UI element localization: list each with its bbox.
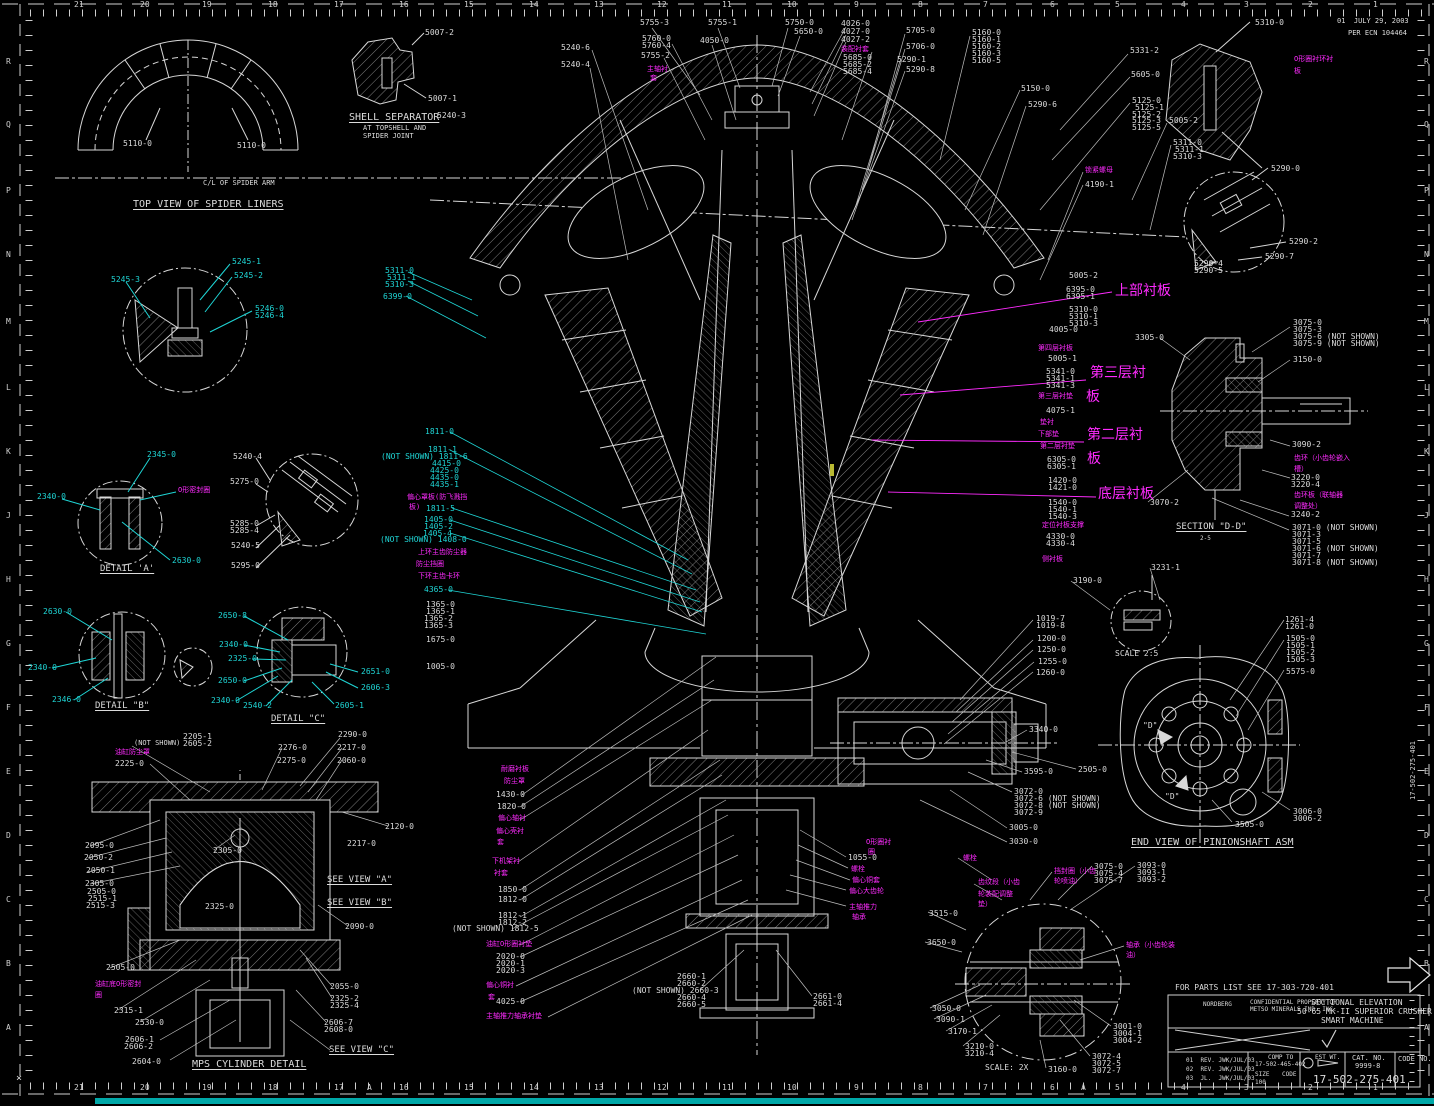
- part-callout: 4365-0: [424, 586, 453, 594]
- part-callout: 5007-1: [428, 95, 457, 103]
- grid-label-bottom: 18: [268, 1083, 278, 1092]
- part-callout: 5110-0: [237, 142, 266, 150]
- grid-label-left: F: [6, 703, 11, 712]
- part-callout: (NOT SHOWN): [134, 740, 180, 747]
- part-callout: "D": [1143, 722, 1157, 730]
- annotation-label: 齿环（小齿轮嵌入: [1294, 455, 1350, 462]
- bolt-bank-detail: [256, 454, 358, 568]
- part-callout: DETAIL "C": [271, 715, 325, 725]
- grid-label-top: 2: [1308, 0, 1313, 9]
- annotation-label: O形密封圈: [178, 487, 210, 494]
- part-callout: 2651-0: [361, 668, 390, 676]
- part-callout: 3090-1: [936, 1016, 965, 1024]
- part-callout: 3093-2: [1137, 876, 1166, 884]
- part-callout: 1850-0: [498, 886, 527, 894]
- part-callout: 3072-7: [1092, 1067, 1121, 1075]
- grid-label-right: L: [1424, 383, 1429, 392]
- annotation-label: 油缸防尘罩: [115, 749, 150, 756]
- blueprint-canvas: 5007-25007-1SHELL SEPARATORAT TOPSHELL A…: [0, 0, 1434, 1106]
- part-callout: 6395-1: [1066, 293, 1095, 301]
- part-callout: (NOT SHOWN) 1408-0: [380, 536, 467, 544]
- annotation-label: 垫衬: [1040, 419, 1054, 426]
- grid-label-top: 20: [140, 0, 150, 9]
- part-callout: 5290-2: [1289, 238, 1318, 246]
- annotation-label: 耐磨衬板: [501, 766, 529, 773]
- confidential-line2: METSO MINERALS IND. INC.: [1250, 1007, 1337, 1013]
- part-callout: 5007-2: [425, 29, 454, 37]
- scale-value: 100: [1255, 1080, 1266, 1086]
- grid-label-top: 3: [1244, 0, 1249, 9]
- grid-label-top: 19: [202, 0, 212, 9]
- annotation-label: 套: [497, 839, 504, 846]
- part-callout: SEE VIEW "B": [327, 899, 392, 909]
- part-callout: 3150-0: [1293, 356, 1322, 364]
- part-callout: 1675-0: [426, 636, 455, 644]
- part-callout: 2120-0: [385, 823, 414, 831]
- shell-separator-detail: [352, 33, 426, 104]
- grid-label-bottom: 21: [74, 1083, 84, 1092]
- part-callout: 2050-2: [84, 854, 113, 862]
- grid-label-bottom: 11: [722, 1083, 732, 1092]
- revision-date: 01 JULY 29, 2003: [1337, 18, 1409, 25]
- rev-row-1: 01 REV. JWK/JUL/03: [1186, 1058, 1255, 1064]
- grid-label-top: 6: [1050, 0, 1055, 9]
- grid-label-top: 11: [722, 0, 732, 9]
- annotation-label: 主轴衬: [647, 66, 668, 73]
- grid-label-bottom: 9: [854, 1083, 859, 1092]
- part-callout: 3071-8 (NOT SHOWN): [1292, 559, 1379, 567]
- part-callout: 3340-0: [1029, 726, 1058, 734]
- part-callout: 3220-4: [1291, 481, 1320, 489]
- drawing-linework: [0, 0, 1434, 1106]
- part-callout: "D": [1165, 793, 1179, 801]
- annotation-label: 板: [1294, 68, 1301, 75]
- part-callout: 2608-0: [324, 1026, 353, 1034]
- part-callout: 2606-3: [361, 684, 390, 692]
- grid-label-bottom: 6: [1050, 1083, 1055, 1092]
- part-callout: 4435-1: [430, 481, 459, 489]
- annotation-label: 油缸底O形密封: [95, 981, 141, 988]
- part-callout: 6305-1: [1047, 463, 1076, 471]
- grid-label-left: N: [6, 250, 11, 259]
- grid-label-bottom: 15: [464, 1083, 474, 1092]
- end-view-pinionshaft: [1098, 645, 1300, 848]
- grid-label-right: H: [1424, 575, 1429, 584]
- part-callout: 6399-0: [383, 293, 412, 301]
- part-callout: 3505-0: [1235, 821, 1264, 829]
- spider-cap-detail: [123, 264, 252, 392]
- part-callout: 5150-0: [1021, 85, 1050, 93]
- annotation-label: 油）: [1126, 952, 1140, 959]
- part-callout: 5245-2: [234, 272, 263, 280]
- grid-label-left: M: [6, 317, 11, 326]
- part-callout: 5685-4: [843, 68, 872, 76]
- part-callout: 5240-3: [437, 112, 466, 120]
- part-callout: 1055-0: [848, 854, 877, 862]
- part-callout: 3030-0: [1009, 838, 1038, 846]
- part-callout: 2-5: [1200, 536, 1211, 542]
- grid-label-left: K: [6, 447, 11, 456]
- part-callout: SCALE 2:5: [1115, 650, 1158, 658]
- part-callout: DETAIL "B": [95, 702, 149, 712]
- part-callout: 2325-4: [330, 1002, 359, 1010]
- annotation-label: 板: [1087, 452, 1101, 467]
- part-callout: 5760-4: [642, 42, 671, 50]
- annotation-label: 板): [409, 504, 420, 511]
- annotation-label: 第二层衬垫: [1040, 443, 1075, 450]
- part-callout: 1820-0: [497, 803, 526, 811]
- part-callout: 5705-0: [906, 27, 935, 35]
- annotation-label: O形圈衬: [866, 839, 891, 846]
- grid-label-left: L: [6, 383, 11, 392]
- part-callout: 5160-5: [972, 57, 1001, 65]
- annotation-label: 轮装配调整: [978, 891, 1013, 898]
- part-callout: 5310-3: [385, 281, 414, 289]
- part-callout: 5706-0: [906, 43, 935, 51]
- part-callout: SEE VIEW "A": [327, 876, 392, 886]
- annotation-label: 下部垫: [1038, 431, 1059, 438]
- part-callout: 5246-4: [255, 312, 284, 320]
- part-callout: 2340-0: [28, 664, 57, 672]
- part-callout: 3090-2: [1292, 441, 1321, 449]
- revision-ecn: PER ECN 104464: [1348, 30, 1407, 37]
- part-callout: 2340-0: [219, 641, 248, 649]
- grid-label-left: D: [6, 831, 11, 840]
- part-callout: 1430-0: [496, 791, 525, 799]
- part-callout: 2060-0: [337, 757, 366, 765]
- grid-label-right: J: [1424, 511, 1429, 520]
- annotation-label: 下环主齿卡环: [418, 573, 460, 580]
- annotation-label: 上环主齿防尘器: [418, 549, 467, 556]
- part-callout: 3650-0: [927, 939, 956, 947]
- grid-label-right: A: [1424, 1023, 1429, 1032]
- part-callout: 2020-3: [496, 967, 525, 975]
- brand-mark: NORDBERG: [1203, 1002, 1232, 1008]
- part-callout: 3075-9 (NOT SHOWN): [1293, 340, 1380, 348]
- annotation-label: 轴承: [852, 914, 866, 921]
- annotation-label: 偏心铜套: [852, 877, 880, 884]
- annotation-label: 齿环板（联轴器: [1294, 492, 1343, 499]
- part-callout: 3070-2: [1150, 499, 1179, 507]
- annotation-label: 挡封圈（小齿: [1054, 868, 1096, 875]
- part-callout: 5755-2: [641, 52, 670, 60]
- grid-label-top: 10: [787, 0, 797, 9]
- part-callout: 3170-1: [948, 1028, 977, 1036]
- part-callout: SECTION "D-D": [1176, 523, 1246, 533]
- yellow-highlight-mark: [830, 464, 834, 476]
- grid-label-top: 9: [854, 0, 859, 9]
- annotation-label: 偏心轴衬: [498, 815, 526, 822]
- part-callout: 1261-0: [1285, 623, 1314, 631]
- part-callout: 3305-0: [1135, 334, 1164, 342]
- part-callout: 2217-0: [337, 744, 366, 752]
- part-callout: 4027-2: [841, 36, 870, 44]
- part-callout: 5275-0: [230, 478, 259, 486]
- part-callout: (NOT SHOWN) 1812-5: [452, 925, 539, 933]
- part-callout: 5285-4: [230, 527, 259, 535]
- grid-label-bottom: 3: [1244, 1083, 1249, 1092]
- part-callout: DETAIL 'A': [100, 565, 154, 575]
- part-callout: 5110-0: [123, 140, 152, 148]
- part-callout: 2340-0: [211, 697, 240, 705]
- part-callout: 3190-0: [1073, 577, 1102, 585]
- part-callout: 5290-7: [1265, 253, 1294, 261]
- annotation-label: 偏心罩板(防飞溅挡: [407, 494, 467, 501]
- part-callout: 5005-2: [1169, 117, 1198, 125]
- part-callout: 3240-2: [1291, 511, 1320, 519]
- grid-label-left: H: [6, 575, 11, 584]
- part-callout: 1812-0: [498, 896, 527, 904]
- grid-label-bottom: 16: [399, 1083, 409, 1092]
- annotation-label: 下机架衬: [492, 858, 520, 865]
- part-callout: 5240-4: [561, 61, 590, 69]
- part-callout: 5755-3: [640, 19, 669, 27]
- part-callout: 5331-2: [1130, 47, 1159, 55]
- part-callout: 2661-4: [813, 1000, 842, 1008]
- grid-label-bottom: A: [1081, 1083, 1086, 1092]
- grid-label-bottom: 7: [983, 1083, 988, 1092]
- part-callout: END VIEW OF PINIONSHAFT ASM: [1131, 838, 1294, 849]
- grid-label-right: E: [1424, 767, 1429, 776]
- bottom-green-bar: [95, 1098, 1434, 1104]
- part-callout: 2345-0: [147, 451, 176, 459]
- part-callout: 2605-1: [335, 702, 364, 710]
- part-callout: 5290-6: [1028, 101, 1057, 109]
- part-callout: 2090-0: [345, 923, 374, 931]
- part-callout: 5290-8: [906, 66, 935, 74]
- part-callout: MPS CYLINDER DETAIL: [192, 1060, 306, 1071]
- annotation-label: 螺栓: [851, 866, 865, 873]
- part-callout: 4005-0: [1049, 326, 1078, 334]
- annotation-label: 上部衬板: [1115, 284, 1171, 299]
- grid-label-bottom: 10: [787, 1083, 797, 1092]
- part-callout: 3050-0: [932, 1005, 961, 1013]
- grid-label-right: G: [1424, 639, 1429, 648]
- grid-label-bottom: 13: [594, 1083, 604, 1092]
- part-callout: 5341-3: [1046, 382, 1075, 390]
- detail-b-c: [52, 607, 358, 706]
- part-callout: 5575-0: [1286, 668, 1315, 676]
- annotation-label: 防尘挡圈: [416, 561, 444, 568]
- drawing-title-line3: SMART MACHINE: [1321, 1017, 1384, 1025]
- scale-2x-detail: [955, 904, 1132, 1060]
- annotation-label: 第二层衬: [1087, 428, 1143, 443]
- grid-label-right: C: [1424, 895, 1429, 904]
- part-callout: 2290-0: [338, 731, 367, 739]
- part-callout: 4050-0: [700, 37, 729, 45]
- annotation-label: O形圈衬环衬: [1294, 56, 1333, 63]
- part-callout: 3072-9: [1014, 809, 1043, 817]
- grid-label-top: 14: [529, 0, 539, 9]
- part-callout: SHELL SEPARATOR: [349, 113, 439, 124]
- grid-label-right: B: [1424, 959, 1429, 968]
- grid-label-top: 4: [1181, 0, 1186, 9]
- grid-label-top: 15: [464, 0, 474, 9]
- grid-label-right: K: [1424, 447, 1429, 456]
- annotation-label: 齿纹段（小齿: [978, 879, 1020, 886]
- part-callout: 1505-3: [1286, 656, 1315, 664]
- grid-label-bottom: 5: [1115, 1083, 1120, 1092]
- sheet-border: [2, 4, 1434, 1098]
- grid-label-right: Q: [1424, 120, 1429, 129]
- grid-label-top: 1: [1373, 0, 1378, 9]
- grid-label-right: F: [1424, 703, 1429, 712]
- annotation-label: 套: [650, 75, 657, 82]
- part-callout: 2630-0: [43, 608, 72, 616]
- annotation-label: 主轴推力轴承衬垫: [486, 1013, 542, 1020]
- grid-label-right: R: [1424, 57, 1429, 66]
- annotation-label: 锁紧螺母: [1085, 167, 1113, 174]
- part-callout: 5310-3: [1173, 153, 1202, 161]
- part-callout: 4025-0: [496, 998, 525, 1006]
- part-callout: 2604-0: [132, 1058, 161, 1066]
- part-callout: 2505-0: [106, 964, 135, 972]
- part-callout: C/L OF SPIDER ARM: [203, 180, 275, 187]
- part-callout: TOP VIEW OF SPIDER LINERS: [133, 200, 284, 211]
- annotation-label: 螺栓: [963, 855, 977, 862]
- annotation-label: 第三层衬垫: [1038, 393, 1073, 400]
- annotation-label: 套: [488, 994, 495, 1001]
- part-callout: 3075-7: [1094, 877, 1123, 885]
- part-callout: 2325-0: [205, 903, 234, 911]
- part-callout: 1019-8: [1036, 622, 1065, 630]
- part-callout: 2315-1: [114, 1007, 143, 1015]
- part-callout: 3231-1: [1151, 564, 1180, 572]
- part-callout: ×: [16, 1074, 22, 1085]
- part-callout: 2606-2: [124, 1043, 153, 1051]
- grid-label-left: Q: [6, 120, 11, 129]
- grid-label-top: 13: [594, 0, 604, 9]
- part-callout: 2650-8: [218, 612, 247, 620]
- annotation-label: 垫）: [978, 901, 992, 908]
- part-callout: 2276-0: [278, 744, 307, 752]
- part-callout: 3006-2: [1293, 815, 1322, 823]
- annotation-label: 圈: [95, 992, 102, 999]
- part-callout: 5295-0: [231, 562, 260, 570]
- part-callout: 2225-0: [115, 760, 144, 768]
- part-callout: 5005-1: [1048, 355, 1077, 363]
- part-callout: 2340-0: [37, 493, 66, 501]
- part-callout: 5650-0: [794, 28, 823, 36]
- annotation-label: 防尘罩: [504, 778, 525, 785]
- part-callout: 5245-3: [111, 276, 140, 284]
- grid-label-top: 16: [399, 0, 409, 9]
- grid-label-top: 17: [334, 0, 344, 9]
- part-callout: 2630-0: [172, 557, 201, 565]
- part-callout: 2605-2: [183, 740, 212, 748]
- annotation-label: 底层衬板: [1098, 487, 1154, 502]
- part-callout: 3005-0: [1009, 824, 1038, 832]
- part-callout: SEE VIEW "C": [329, 1046, 394, 1056]
- part-callout: 4075-1: [1046, 407, 1075, 415]
- annotation-label: 油缸O形圈衬垫: [486, 941, 532, 948]
- part-callout: 2540-2: [243, 702, 272, 710]
- grid-label-bottom: 4: [1181, 1083, 1186, 1092]
- part-callout: 1255-0: [1038, 658, 1067, 666]
- part-callout: 3004-2: [1113, 1037, 1142, 1045]
- part-callout: 5240-6: [561, 44, 590, 52]
- part-callout: 5125-5: [1132, 124, 1161, 132]
- part-callout: SPIDER JOINT: [363, 133, 414, 140]
- rev-row-2: 02 REV. JWK/JUL/03: [1186, 1067, 1255, 1073]
- grid-label-bottom: 20: [140, 1083, 150, 1092]
- grid-label-right: N: [1424, 250, 1429, 259]
- part-callout: 1260-0: [1036, 669, 1065, 677]
- part-callout: 5290-5: [1194, 267, 1223, 275]
- part-callout: SCALE: 2X: [985, 1064, 1028, 1072]
- part-callout: 2505-0: [1078, 766, 1107, 774]
- part-callout: 2660-5: [677, 1001, 706, 1009]
- part-callout: 2530-0: [135, 1019, 164, 1027]
- grid-label-top: 12: [657, 0, 667, 9]
- grid-label-bottom: A: [367, 1083, 372, 1092]
- part-callout: 3210-4: [965, 1050, 994, 1058]
- annotation-label: 定位衬板支撑: [1042, 522, 1084, 529]
- code-no-label: CODE NO.: [1398, 1056, 1432, 1063]
- part-callout: 2055-0: [330, 983, 359, 991]
- part-callout: 2650-0: [218, 677, 247, 685]
- part-callout: 5605-0: [1131, 71, 1160, 79]
- part-callout: 17-502-275-401: [1410, 741, 1417, 800]
- comp-to-value: 17-502-465-402: [1255, 1062, 1306, 1068]
- rev-row-3: 03 JL. JWK/JUL/03: [1186, 1076, 1255, 1082]
- grid-label-bottom: 19: [202, 1083, 212, 1092]
- grid-label-bottom: 14: [529, 1083, 539, 1092]
- grid-label-top: 21: [74, 0, 84, 9]
- part-callout: 5755-1: [708, 19, 737, 27]
- annotation-label: 偏心大齿轮: [849, 888, 884, 895]
- est-wt-label: EST WT.: [1315, 1055, 1340, 1061]
- part-callout: 1365-3: [424, 622, 453, 630]
- part-callout: 1250-0: [1037, 646, 1066, 654]
- drawing-number: 17-502-275-401: [1313, 1074, 1406, 1086]
- annotation-label: 轴承（小齿轮装: [1126, 942, 1175, 949]
- annotation-label: 第四层衬板: [1038, 345, 1073, 352]
- part-callout: 2217-0: [347, 840, 376, 848]
- code-label: CODE: [1282, 1072, 1296, 1078]
- grid-label-right: M: [1424, 317, 1429, 326]
- grid-label-left: B: [6, 959, 11, 968]
- grid-label-right: D: [1424, 831, 1429, 840]
- part-callout: 2325-0: [228, 655, 257, 663]
- part-callout: 1005-0: [426, 663, 455, 671]
- annotation-label: 板: [1086, 390, 1100, 405]
- part-callout: 5290-0: [1271, 165, 1300, 173]
- part-callout: 5245-1: [232, 258, 261, 266]
- part-callout: 3515-0: [929, 910, 958, 918]
- part-callout: 1811-5: [426, 505, 455, 513]
- part-callout: 5240-4: [233, 453, 262, 461]
- main-section-elevation: [468, 35, 1060, 1055]
- grid-label-bottom: 12: [657, 1083, 667, 1092]
- annotation-label: 偏心壳衬: [496, 828, 524, 835]
- grid-label-top: 5: [1115, 0, 1120, 9]
- grid-label-left: R: [6, 57, 11, 66]
- part-callout: 5240-5: [231, 542, 260, 550]
- part-callout: 5310-0: [1255, 19, 1284, 27]
- annotation-label: 第三层衬: [1090, 366, 1146, 381]
- cat-no-value: 9999-8: [1355, 1063, 1380, 1070]
- grid-label-left: E: [6, 767, 11, 776]
- part-callout: 5005-2: [1069, 272, 1098, 280]
- part-callout: 2515-3: [86, 902, 115, 910]
- scale-25-detail: [1111, 575, 1171, 651]
- grid-label-top: 18: [268, 0, 278, 9]
- detail-a: [62, 458, 176, 565]
- size-label: SIZE: [1255, 1072, 1269, 1078]
- part-callout: 2050-1: [86, 867, 115, 875]
- part-callout: 4190-1: [1085, 181, 1114, 189]
